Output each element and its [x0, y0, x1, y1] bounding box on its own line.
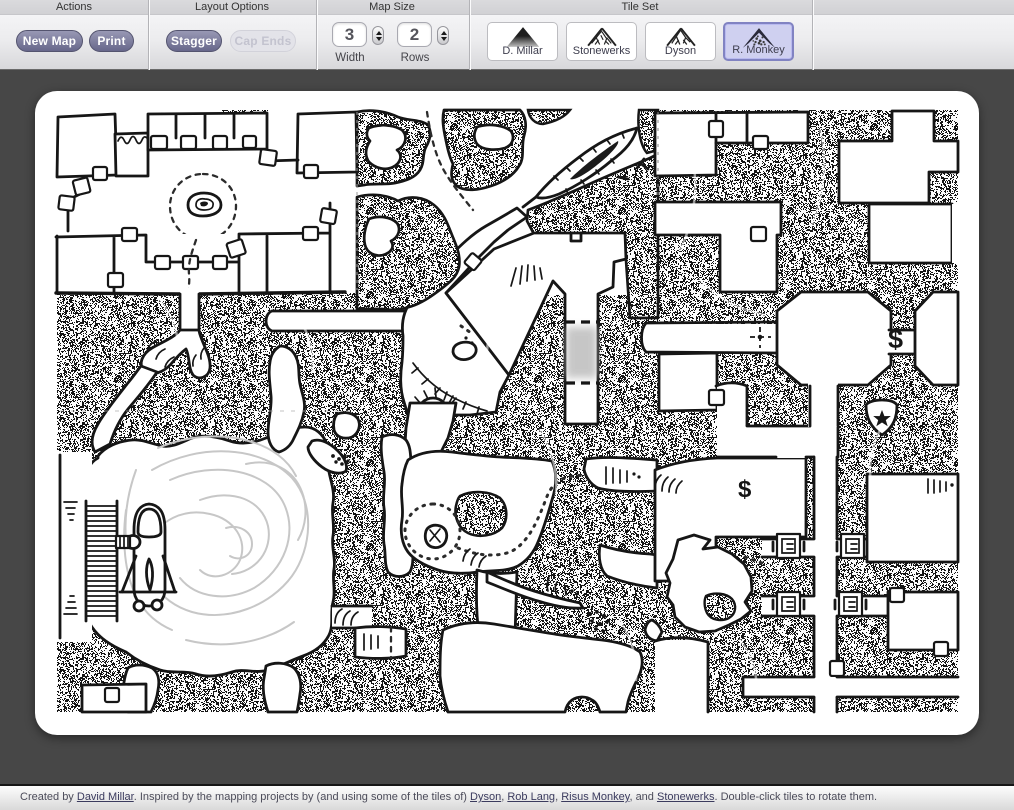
svg-text:$: $ [888, 324, 903, 354]
svg-text:$: $ [738, 476, 752, 503]
